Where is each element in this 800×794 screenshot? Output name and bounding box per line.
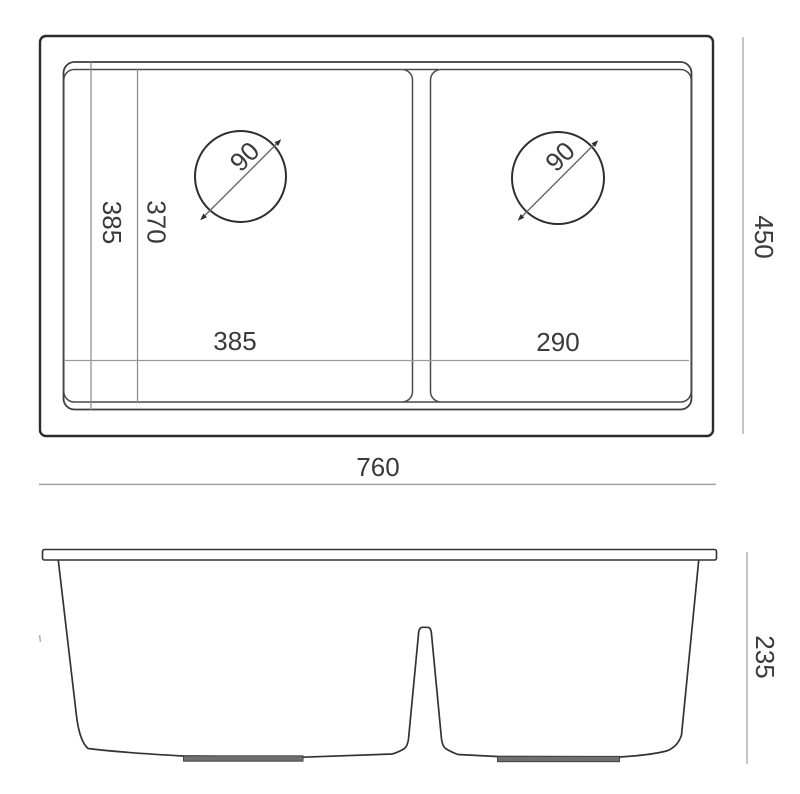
svg-text:760: 760 — [356, 452, 399, 482]
svg-text:450: 450 — [749, 215, 779, 258]
svg-text:370: 370 — [142, 200, 172, 243]
svg-text:385: 385 — [97, 201, 127, 244]
svg-text:235: 235 — [750, 635, 780, 678]
svg-text:385: 385 — [213, 326, 256, 356]
svg-text:290: 290 — [536, 327, 579, 357]
